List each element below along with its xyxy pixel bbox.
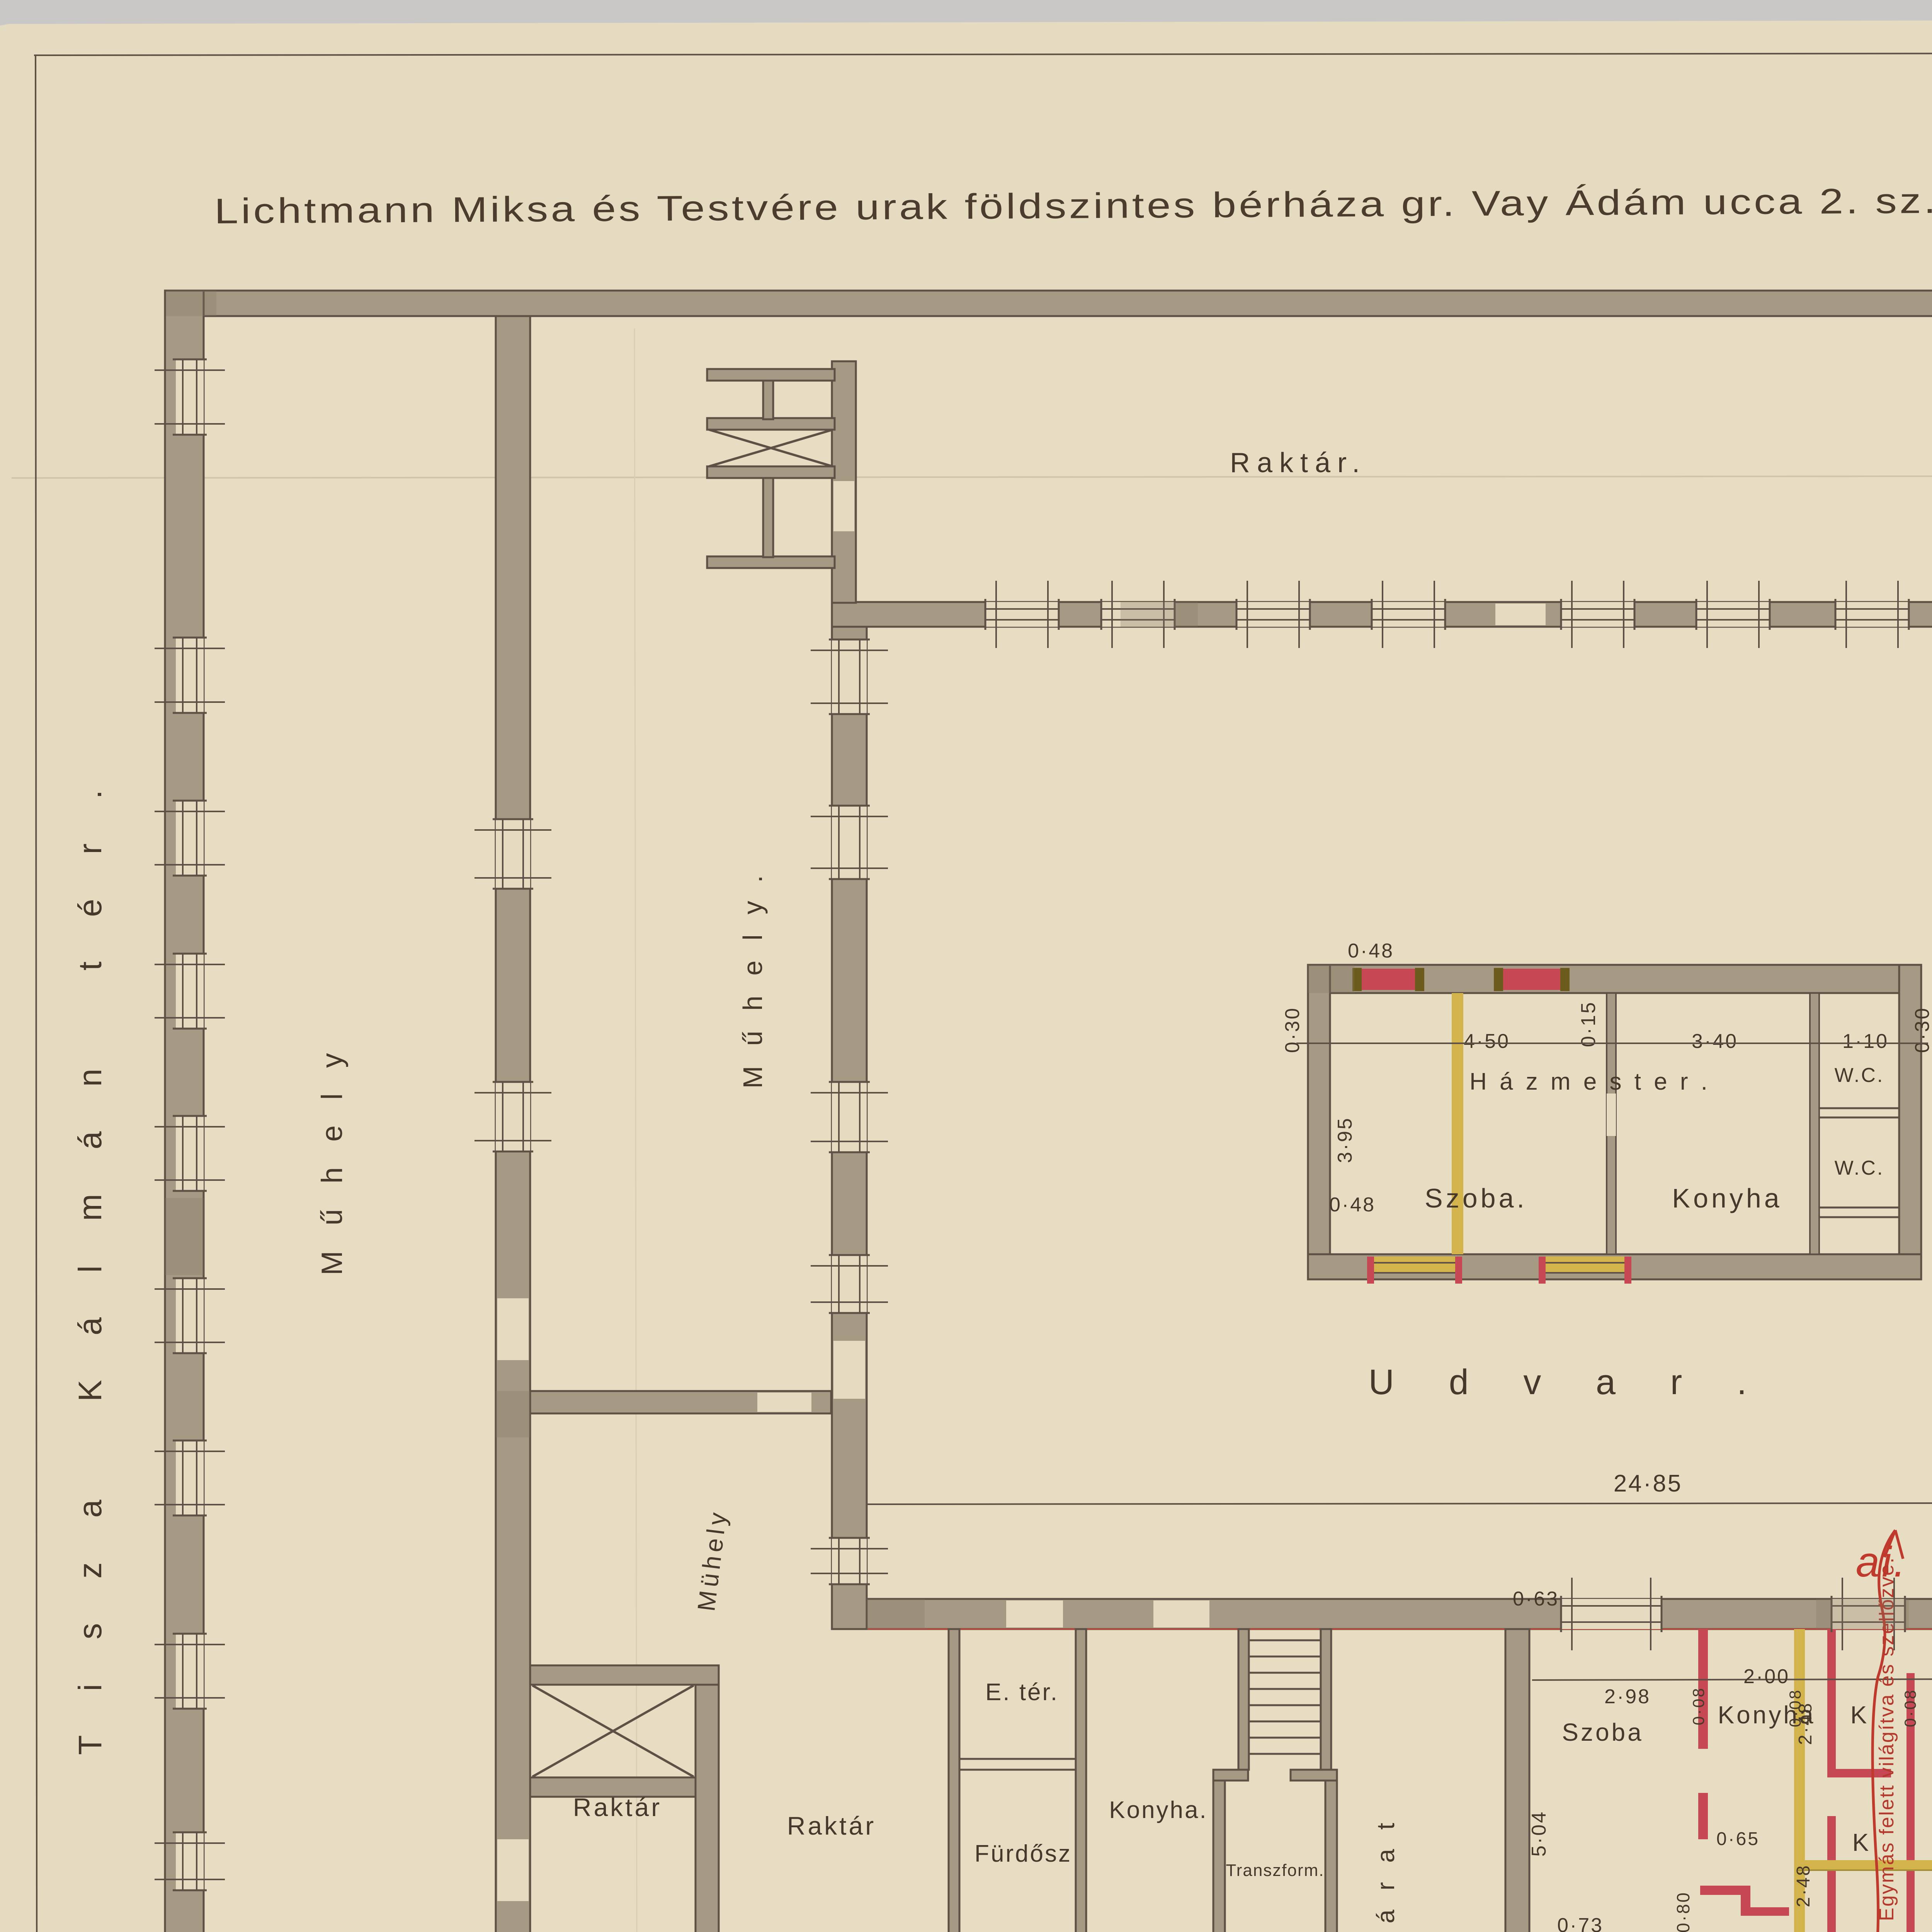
svg-text:3·40: 3·40 <box>1692 1030 1738 1053</box>
svg-text:Konyha.: Konyha. <box>1109 1797 1208 1823</box>
svg-text:H á z m e s t e r .: H á z m e s t e r . <box>1469 1068 1711 1095</box>
svg-text:E. tér.: E. tér. <box>985 1679 1059 1706</box>
svg-text:0·73: 0·73 <box>1557 1914 1604 1932</box>
svg-text:Kapubejárat: Kapubejárat <box>1372 1803 1400 1932</box>
svg-text:2·98: 2·98 <box>1604 1685 1651 1708</box>
svg-text:0·15: 0·15 <box>1577 1001 1600 1047</box>
svg-text:K: K <box>1852 1828 1873 1856</box>
svg-text:Raktár: Raktár <box>787 1811 876 1840</box>
svg-text:2·00: 2·00 <box>1743 1665 1790 1688</box>
svg-text:U d v a r .: U d v a r . <box>1369 1362 1769 1402</box>
svg-text:0·48: 0·48 <box>1329 1194 1376 1216</box>
svg-text:0·48: 0·48 <box>1348 940 1394 962</box>
svg-text:Raktár.: Raktár. <box>1230 447 1367 478</box>
svg-text:Transzform.: Transzform. <box>1226 1861 1324 1880</box>
svg-text:K: K <box>1850 1701 1871 1729</box>
svg-text:0·63: 0·63 <box>1513 1588 1559 1610</box>
svg-text:Raktár: Raktár <box>573 1793 662 1821</box>
svg-text:Konyha: Konyha <box>1718 1701 1815 1729</box>
svg-text:0·80: 0·80 <box>1673 1891 1693 1932</box>
svg-text:0·08: 0·08 <box>1689 1687 1708 1725</box>
svg-text:W.C.: W.C. <box>1835 1064 1884 1087</box>
svg-text:0·30: 0·30 <box>1281 1007 1304 1053</box>
svg-text:Szoba: Szoba <box>1562 1718 1643 1746</box>
svg-text:24·85: 24·85 <box>1614 1470 1683 1497</box>
svg-text:0·30: 0·30 <box>1911 1007 1932 1053</box>
svg-text:0·08: 0·08 <box>1901 1689 1919 1727</box>
svg-text:Konyha: Konyha <box>1672 1183 1782 1213</box>
svg-text:T i s z a K á l m á n t é: T i s z a K á l m á n t é r . <box>72 772 108 1755</box>
svg-text:0·65: 0·65 <box>1716 1829 1760 1849</box>
svg-text:3·95: 3·95 <box>1334 1117 1356 1163</box>
svg-text:W.C.: W.C. <box>1835 1157 1884 1179</box>
svg-text:Műhely.: Műhely. <box>738 855 768 1088</box>
svg-text:Műhely: Műhely <box>316 1028 349 1276</box>
svg-text:Szoba.: Szoba. <box>1425 1183 1527 1213</box>
svg-text:Fürdősz: Fürdősz <box>975 1840 1072 1867</box>
svg-text:2·48: 2·48 <box>1793 1864 1814 1907</box>
svg-text:5·04: 5·04 <box>1528 1810 1550 1857</box>
svg-text:1·10: 1·10 <box>1842 1030 1889 1053</box>
svg-text:4·50: 4·50 <box>1464 1030 1510 1053</box>
